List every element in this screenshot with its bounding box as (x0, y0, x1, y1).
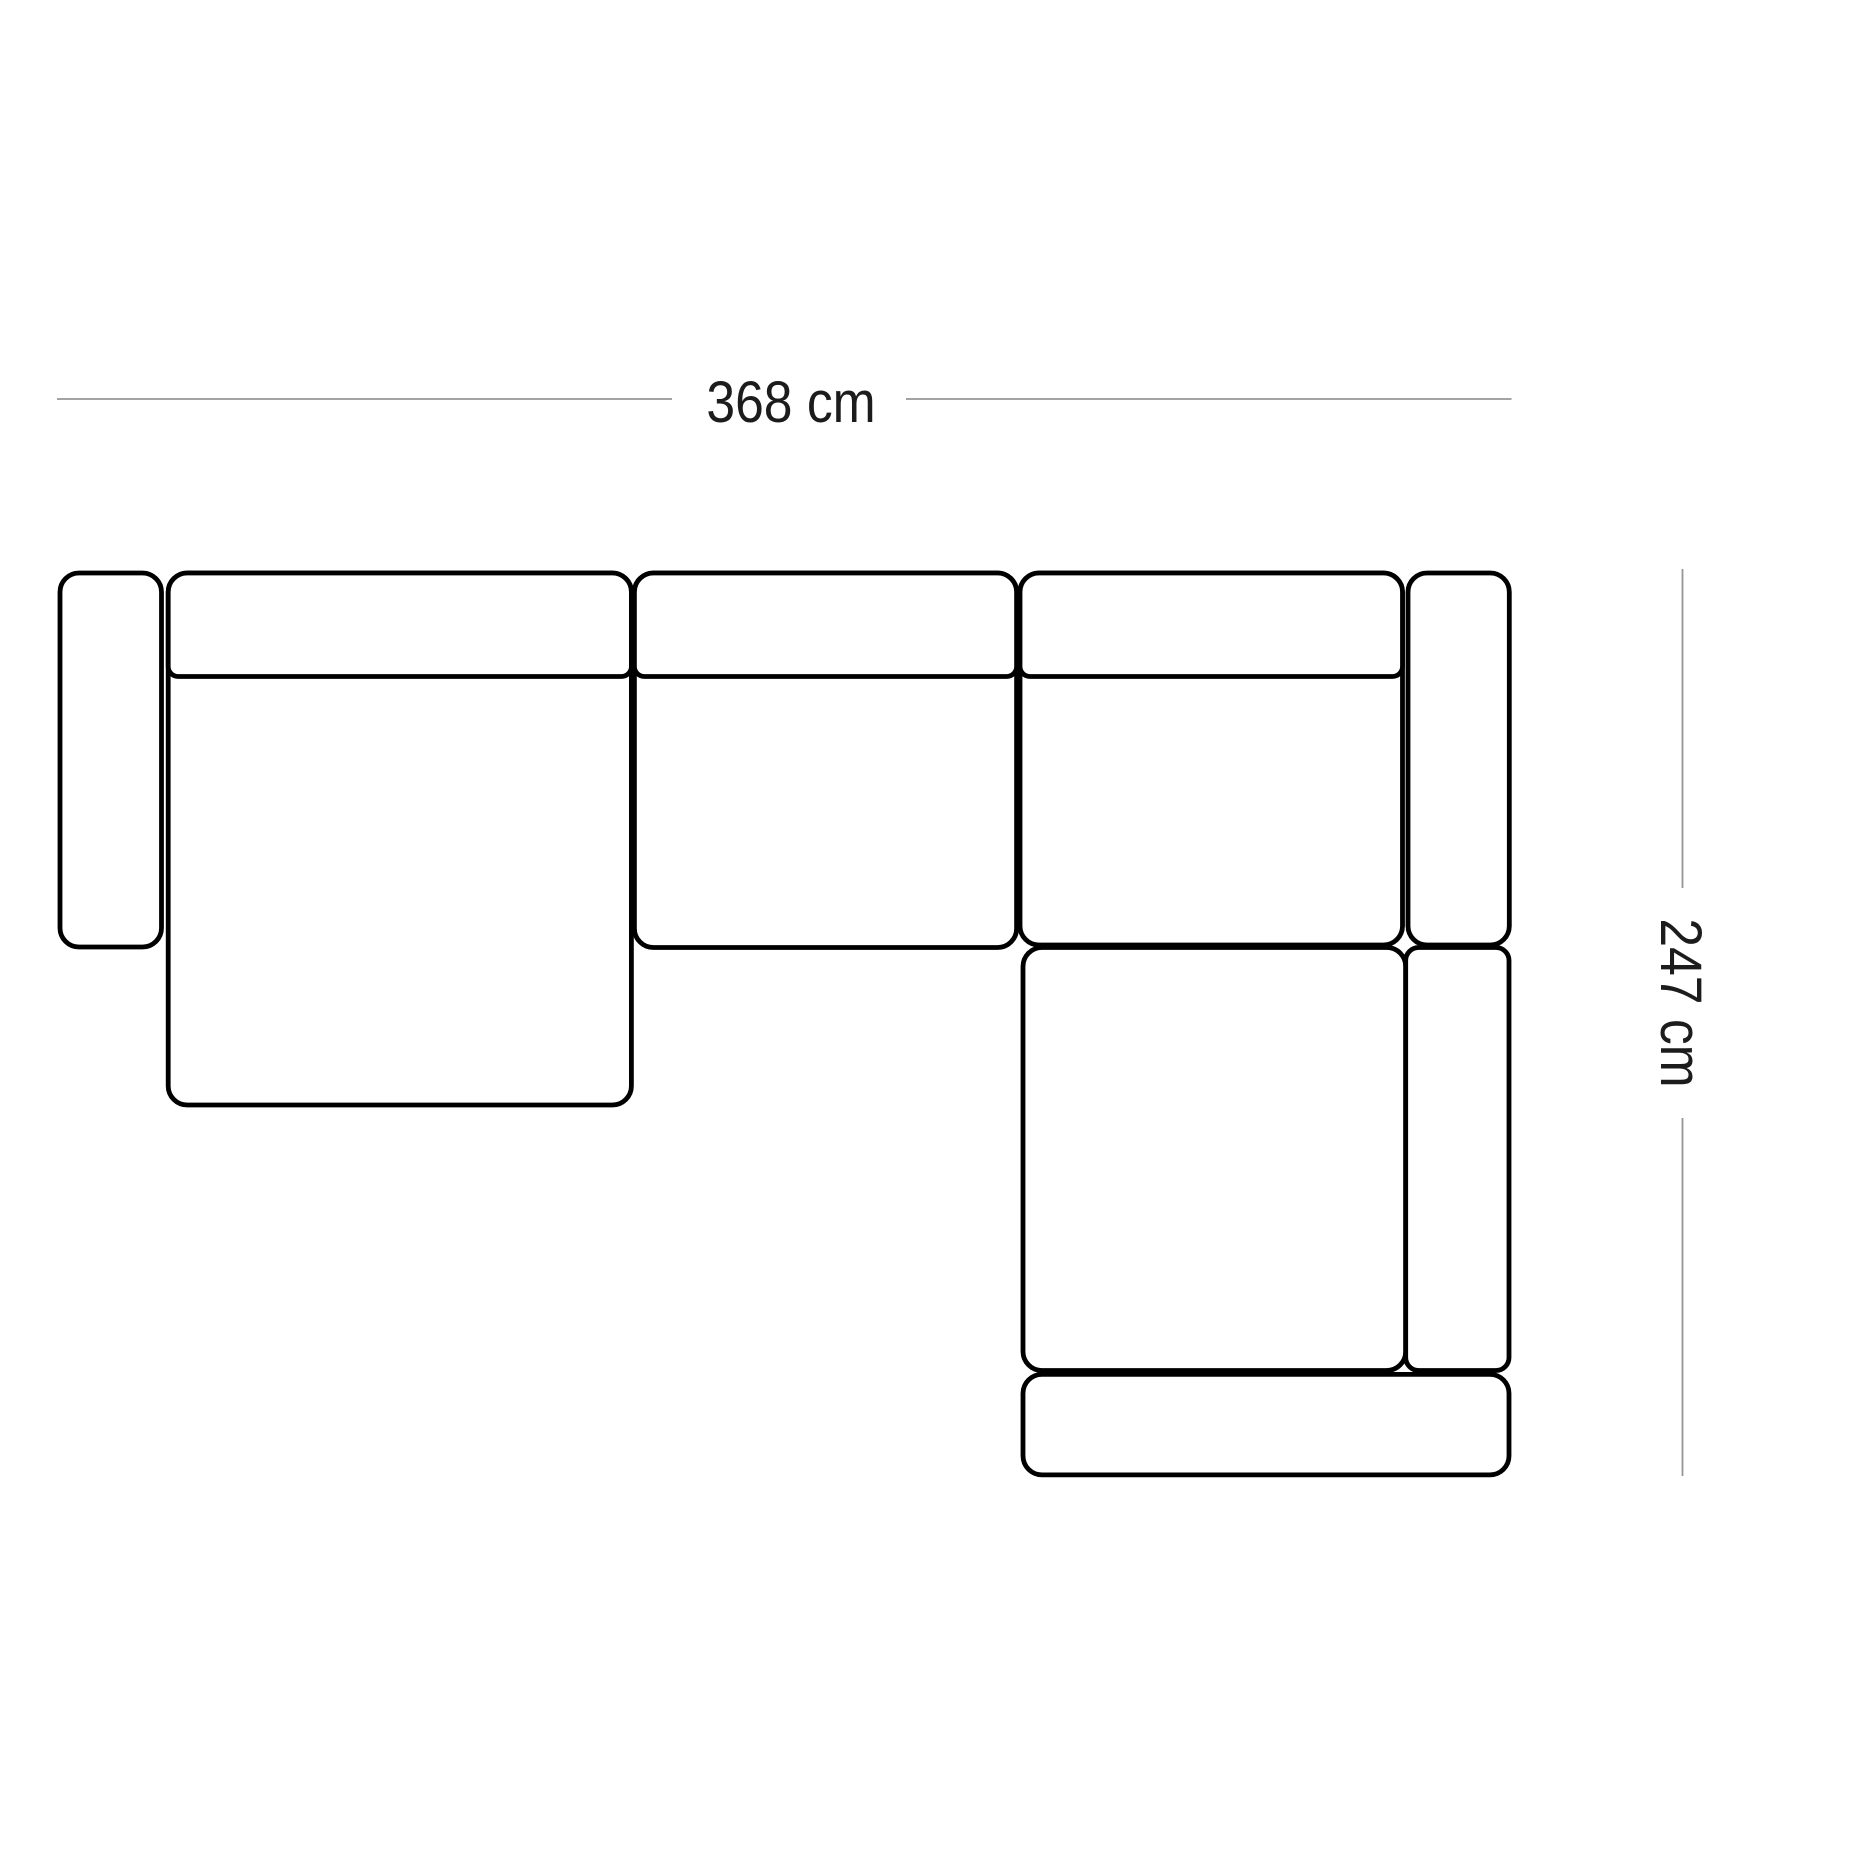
svg-text:368 cm: 368 cm (706, 369, 875, 434)
svg-text:247 cm: 247 cm (1648, 918, 1713, 1087)
